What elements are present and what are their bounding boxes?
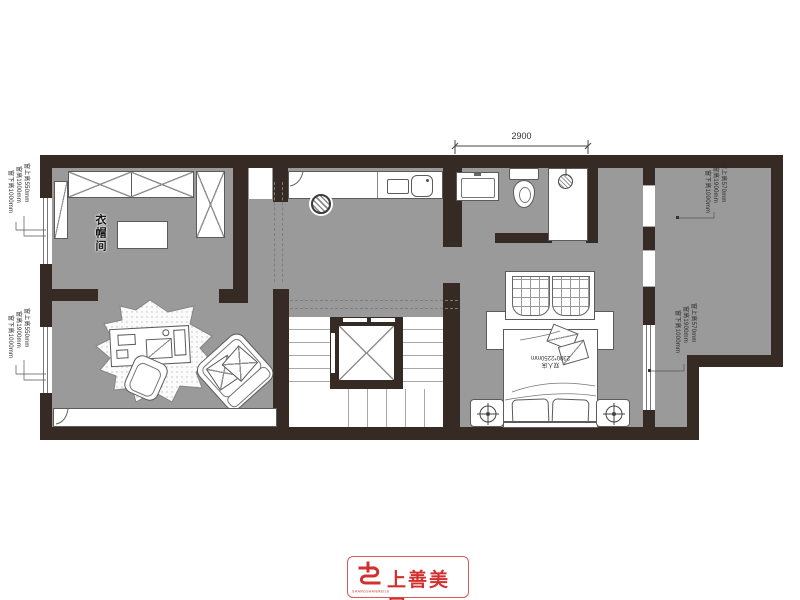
elevator-rail: [331, 333, 335, 373]
dashed-line: [290, 300, 458, 301]
door-opening: [643, 250, 655, 287]
showerhead-icon: [558, 174, 573, 189]
wall: [40, 289, 98, 301]
elevator-cab: [339, 326, 394, 380]
wall: [495, 233, 552, 243]
dashed-line: [274, 182, 275, 282]
window-annotation: 窗高1900mm: [711, 166, 719, 203]
nightstand-left: [470, 399, 504, 427]
elevator-door: [343, 318, 367, 322]
desk-shelf: [173, 329, 186, 356]
floor-drain-column: [311, 194, 331, 214]
window-annotation: 窗高1900mm: [14, 166, 22, 203]
dashed-line: [290, 308, 458, 309]
bed-label-type: 双人床: [505, 360, 596, 367]
window-annotation: 窗上高570mm: [719, 163, 727, 203]
window-annotation: 窗上高570mm: [689, 303, 697, 343]
wall: [687, 355, 699, 440]
closet-cabinet: [54, 181, 68, 239]
wall: [643, 168, 655, 185]
stair-treads-bottom: [330, 389, 443, 427]
window-annotation: 窗上高550mm: [22, 163, 30, 203]
desk-laptop: [146, 338, 173, 359]
wall: [643, 285, 655, 325]
wall: [219, 289, 248, 303]
toilet-tank: [509, 168, 539, 180]
closet-island-table: [117, 221, 168, 249]
compass-flower-icon: [597, 400, 631, 428]
bathroom-washbasin: [456, 172, 499, 201]
floor-plan-canvas: 衣帽间 双人床 2300*2250mm: [0, 0, 800, 600]
wardrobe-cell: [131, 172, 193, 197]
bed-label-size: 2300*2250mm: [505, 353, 596, 360]
window-annotation: 窗上高550mm: [22, 308, 30, 348]
window: [643, 325, 655, 410]
bed-size-label: 双人床 2300*2250mm: [505, 353, 596, 367]
wall: [273, 289, 289, 427]
study-bench: [53, 408, 277, 427]
wardrobe-top: [68, 171, 194, 198]
dimension-label: 2900: [455, 131, 588, 141]
logo: SHANGSHANMEIJU 上善美居: [347, 556, 469, 598]
compass-flower-icon: [471, 400, 505, 428]
window-annotation: 窗下高1000mm: [6, 170, 14, 213]
wall: [40, 155, 783, 168]
wall: [771, 155, 783, 367]
dashed-line: [282, 182, 283, 282]
window-annotation: 窗高1900mm: [681, 306, 689, 343]
room-label-cloakroom: 衣帽间: [92, 214, 108, 253]
window: [40, 198, 52, 264]
desk-item: [116, 349, 128, 359]
wall: [443, 283, 460, 427]
logo-subtext: SHANGSHANMEIJU: [352, 589, 390, 593]
wall: [233, 155, 248, 303]
faucet-dot: [426, 179, 429, 182]
wardrobe-tall: [196, 171, 225, 238]
wall: [443, 155, 462, 247]
headboard-bench: [505, 271, 595, 320]
faucet-icon: [474, 173, 481, 176]
window-annotation: 窗高1900mm: [14, 311, 22, 348]
wall: [643, 225, 655, 250]
wall: [40, 427, 699, 440]
window-annotation: 窗下高1000mm: [703, 170, 711, 213]
headboard-cushion: [552, 276, 590, 316]
wardrobe-cell: [69, 172, 132, 197]
wall: [273, 155, 288, 202]
window-annotation: 窗下高1000mm: [673, 310, 681, 353]
stair-treads-right: [403, 317, 443, 387]
logo-icon: [354, 560, 384, 588]
counter-sink: [387, 179, 409, 194]
brand-name: 上善美居: [387, 565, 469, 600]
nightstand-right: [596, 399, 630, 427]
counter-divider: [377, 172, 378, 198]
elevator-door: [371, 318, 395, 322]
cloakroom-door-opening: [248, 168, 273, 199]
stair-treads-left: [289, 317, 330, 387]
desk-monitor: [117, 334, 136, 346]
bed-foot-band: [503, 421, 598, 428]
wall: [687, 355, 783, 367]
door-opening: [643, 185, 655, 227]
wall: [643, 410, 655, 440]
counter-basin: [411, 175, 433, 197]
window: [40, 327, 52, 393]
headboard-cushion: [512, 276, 550, 316]
window-annotation: 窗下高1000mm: [6, 315, 14, 358]
